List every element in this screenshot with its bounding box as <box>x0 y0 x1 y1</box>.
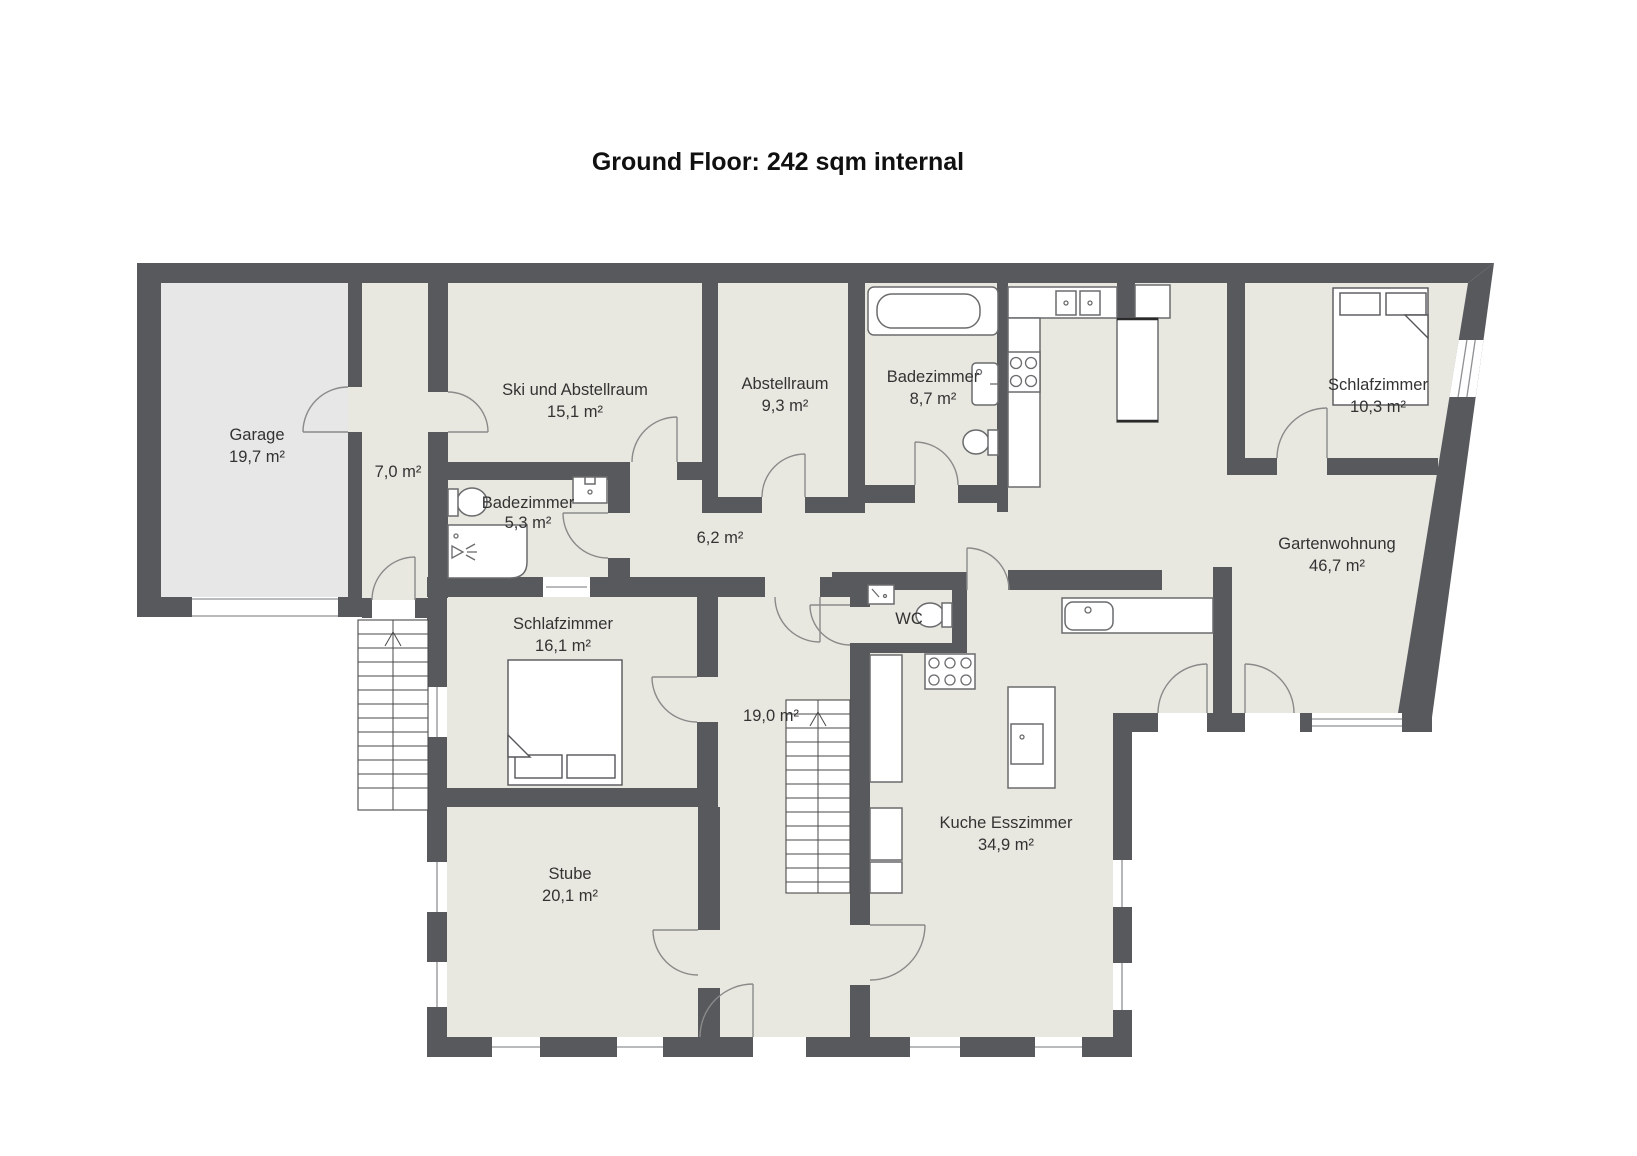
room-label-badezimmer-87: Badezimmer <box>887 368 980 386</box>
window-icon <box>617 1037 663 1057</box>
garden-door-opening <box>1245 713 1300 732</box>
window-icon <box>1035 1037 1082 1057</box>
window-icon <box>1113 963 1132 1010</box>
room-area-abstellraum: 9,3 m² <box>762 397 809 415</box>
room-area-ski-abstellraum: 15,1 m² <box>547 403 603 421</box>
window-icon <box>910 1037 960 1057</box>
room-area-corridor-6: 6,2 m² <box>697 529 744 547</box>
stove-icon <box>925 654 975 689</box>
stove-icon <box>1008 352 1040 392</box>
room-area-gartenwohnung: 46,7 m² <box>1309 557 1365 575</box>
sink-icon <box>868 585 894 604</box>
window-icon <box>492 1037 540 1057</box>
room-label-schlafzimmer-103: Schlafzimmer <box>1328 376 1428 394</box>
bathtub-icon <box>868 287 998 335</box>
window-icon <box>427 862 447 912</box>
stairs-icon <box>786 700 850 893</box>
garden-door-opening <box>1158 713 1207 732</box>
room-area-stube: 20,1 m² <box>542 887 598 905</box>
room-area-stair-hall: 19,0 m² <box>743 707 799 725</box>
room-area-corridor-7: 7,0 m² <box>375 463 422 481</box>
room-label-schlafzimmer-161: Schlafzimmer <box>513 615 613 633</box>
sink-icon <box>1065 602 1113 630</box>
window-icon <box>427 687 447 737</box>
sliding-door-icon <box>543 577 590 597</box>
room-area-kuche-esszimmer: 34,9 m² <box>978 836 1034 854</box>
room-label-abstellraum: Abstellraum <box>741 375 828 393</box>
sink-icon <box>573 477 607 503</box>
garage-door-icon <box>192 597 338 618</box>
room-area-schlafzimmer-161: 16,1 m² <box>535 637 591 655</box>
room-area-badezimmer-53: 5,3 m² <box>505 514 552 532</box>
floor-areas <box>161 283 1468 1057</box>
room-label-wc: WC <box>895 610 923 628</box>
bed-icon <box>508 660 622 785</box>
room-area-garage: 19,7 m² <box>229 448 285 466</box>
floor-plan: Ground Floor: 242 sqm internal Garage 19… <box>0 0 1637 1156</box>
toilet-icon <box>963 430 998 455</box>
window-icon <box>1113 860 1132 907</box>
window-icon <box>427 962 447 1007</box>
kitchen-island <box>1008 687 1055 788</box>
room-label-gartenwohnung: Gartenwohnung <box>1278 535 1395 553</box>
stairs-icon <box>358 620 428 810</box>
page-title: Ground Floor: 242 sqm internal <box>592 148 964 176</box>
room-area-schlafzimmer-103: 10,3 m² <box>1350 398 1406 416</box>
shower-icon <box>448 525 527 578</box>
room-label-badezimmer-53: Badezimmer <box>482 494 575 512</box>
room-label-stube: Stube <box>548 865 591 883</box>
door-opening <box>372 600 415 618</box>
interior-floor <box>161 283 1468 1057</box>
room-label-ski-abstellraum: Ski und Abstellraum <box>502 381 648 399</box>
front-door-opening <box>753 1037 806 1057</box>
room-area-badezimmer-87: 8,7 m² <box>910 390 957 408</box>
kitchen-counter <box>870 655 902 893</box>
room-label-garage: Garage <box>229 426 284 444</box>
floor-plan-page: Ground Floor: 242 sqm internal Garage 19… <box>0 0 1637 1156</box>
window-icon <box>1312 713 1402 732</box>
room-label-kuche-esszimmer: Kuche Esszimmer <box>940 814 1073 832</box>
